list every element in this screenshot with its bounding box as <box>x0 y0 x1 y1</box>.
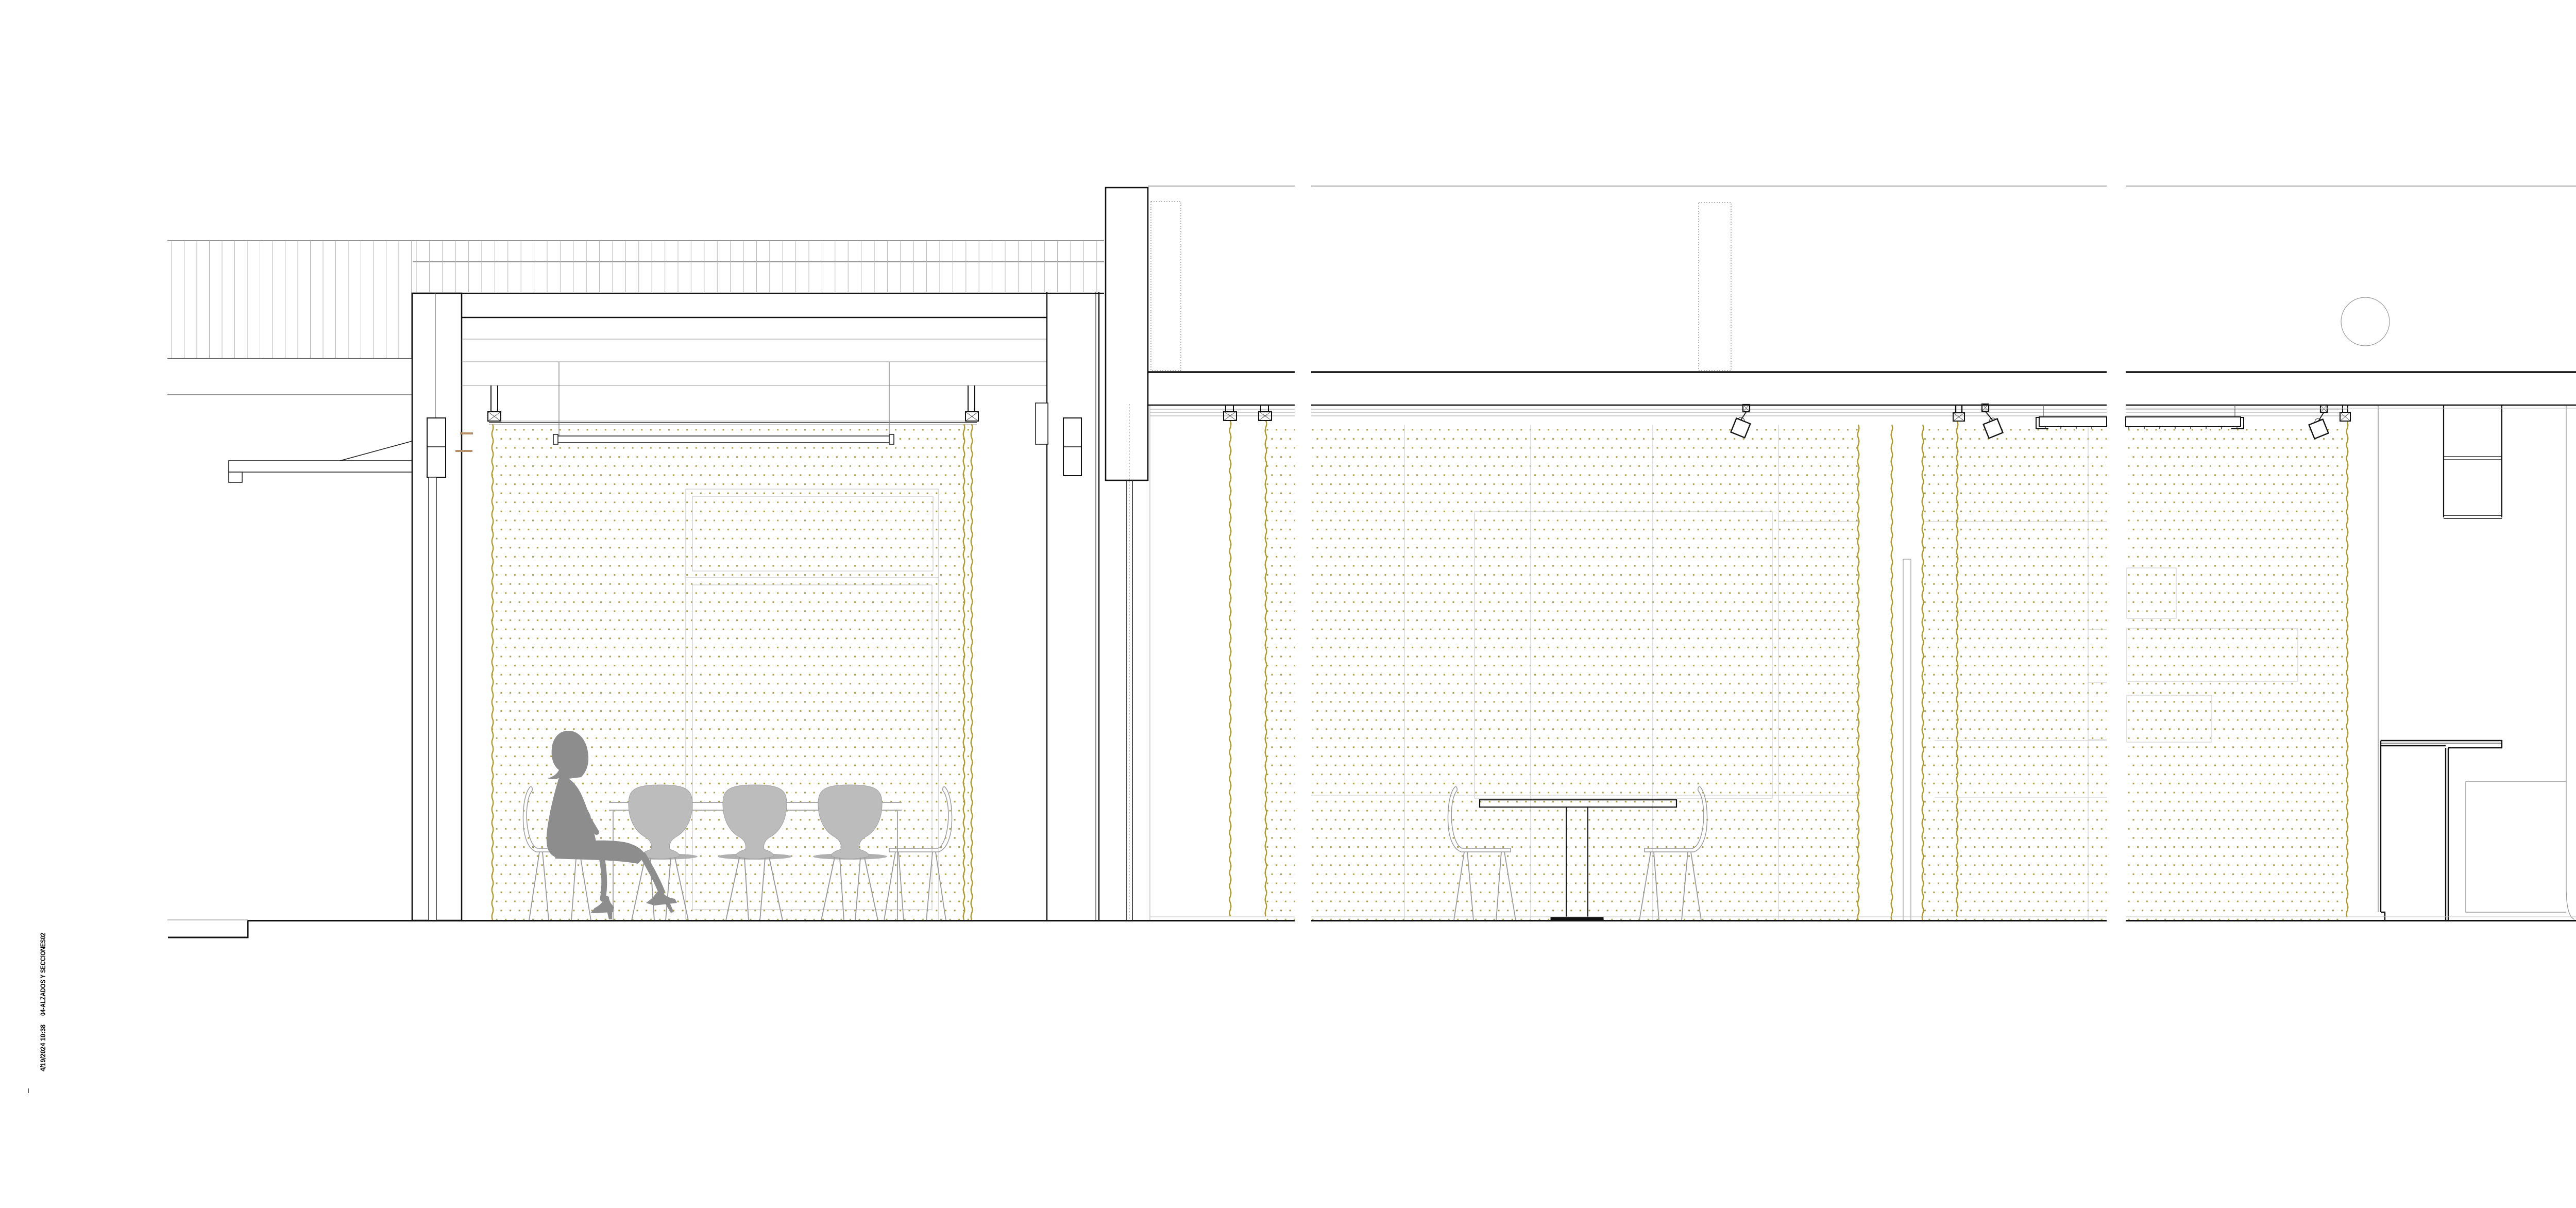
svg-text:4/19/2024 10:38: 4/19/2024 10:38 <box>39 1025 47 1071</box>
svg-text:04-ALZADOS Y SECCIONES02: 04-ALZADOS Y SECCIONES02 <box>39 933 47 1016</box>
